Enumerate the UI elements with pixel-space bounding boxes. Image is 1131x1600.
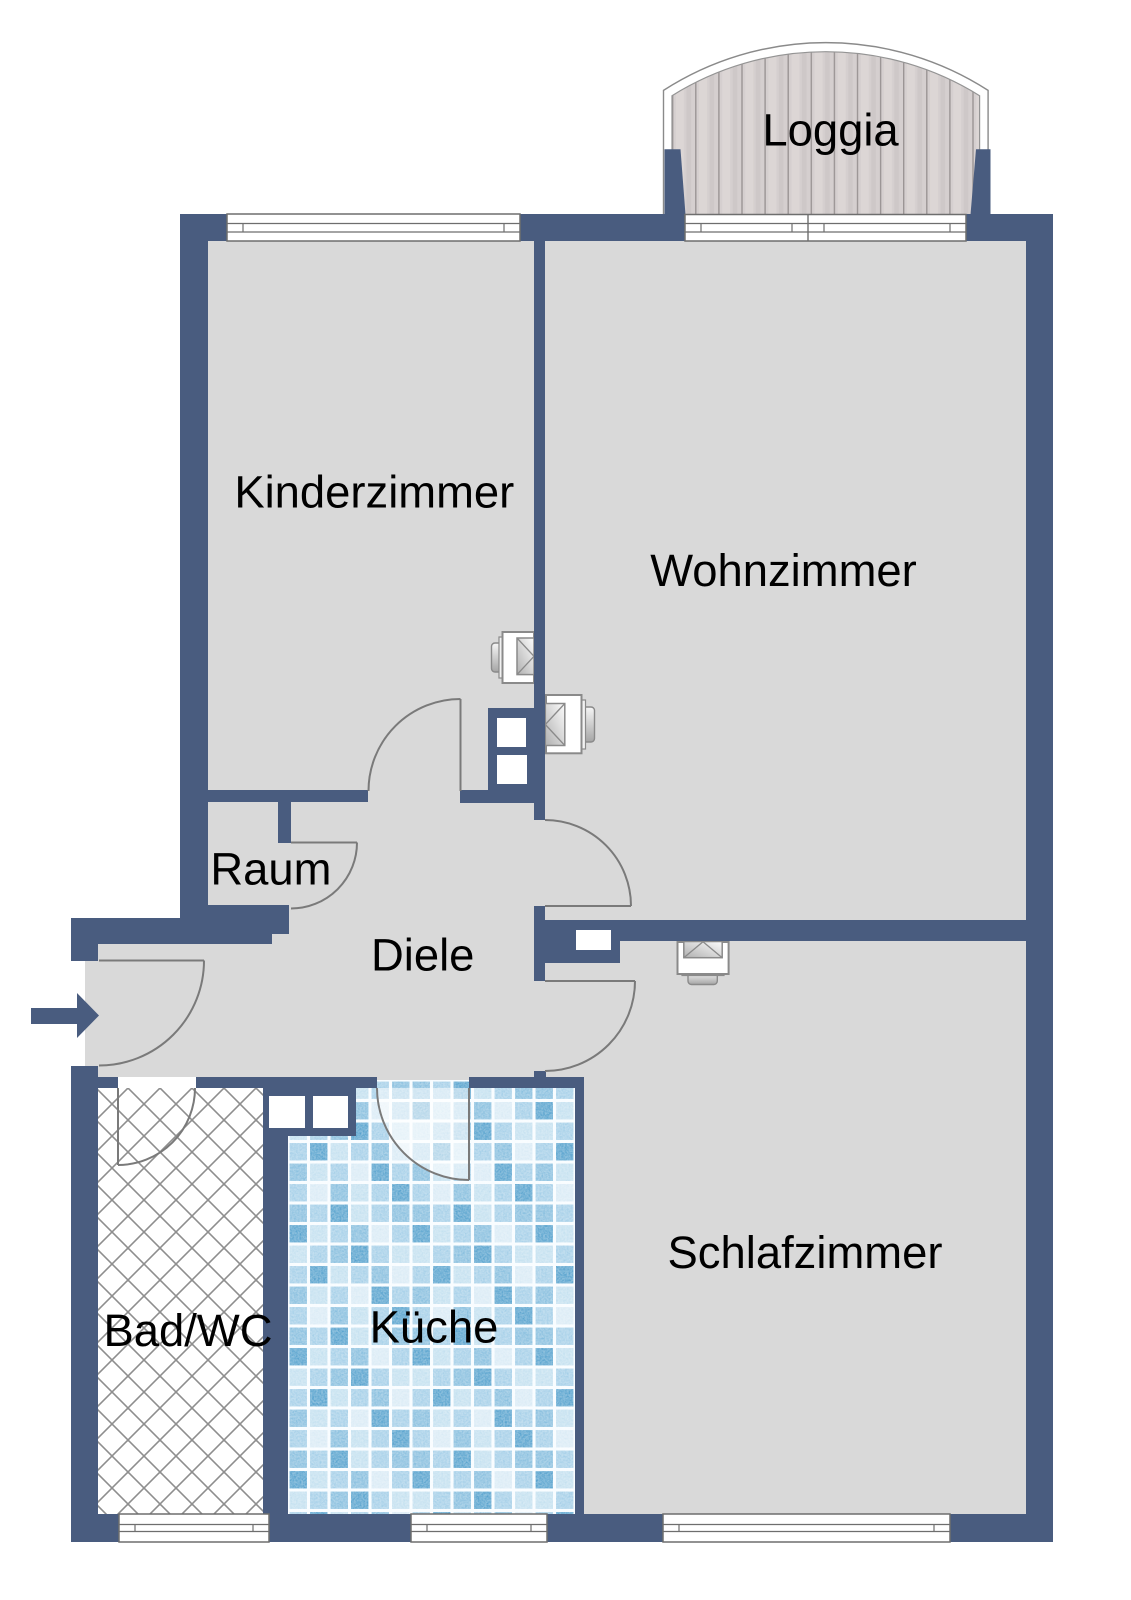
svg-text:Raum: Raum xyxy=(210,844,331,895)
svg-text:Bad/WC: Bad/WC xyxy=(104,1305,273,1356)
svg-text:Loggia: Loggia xyxy=(762,105,899,156)
svg-text:Kinderzimmer: Kinderzimmer xyxy=(234,466,514,517)
svg-text:Schlafzimmer: Schlafzimmer xyxy=(668,1227,943,1278)
svg-text:Wohnzimmer: Wohnzimmer xyxy=(650,545,917,596)
svg-text:Diele: Diele xyxy=(371,930,474,981)
svg-text:Küche: Küche xyxy=(370,1301,499,1352)
